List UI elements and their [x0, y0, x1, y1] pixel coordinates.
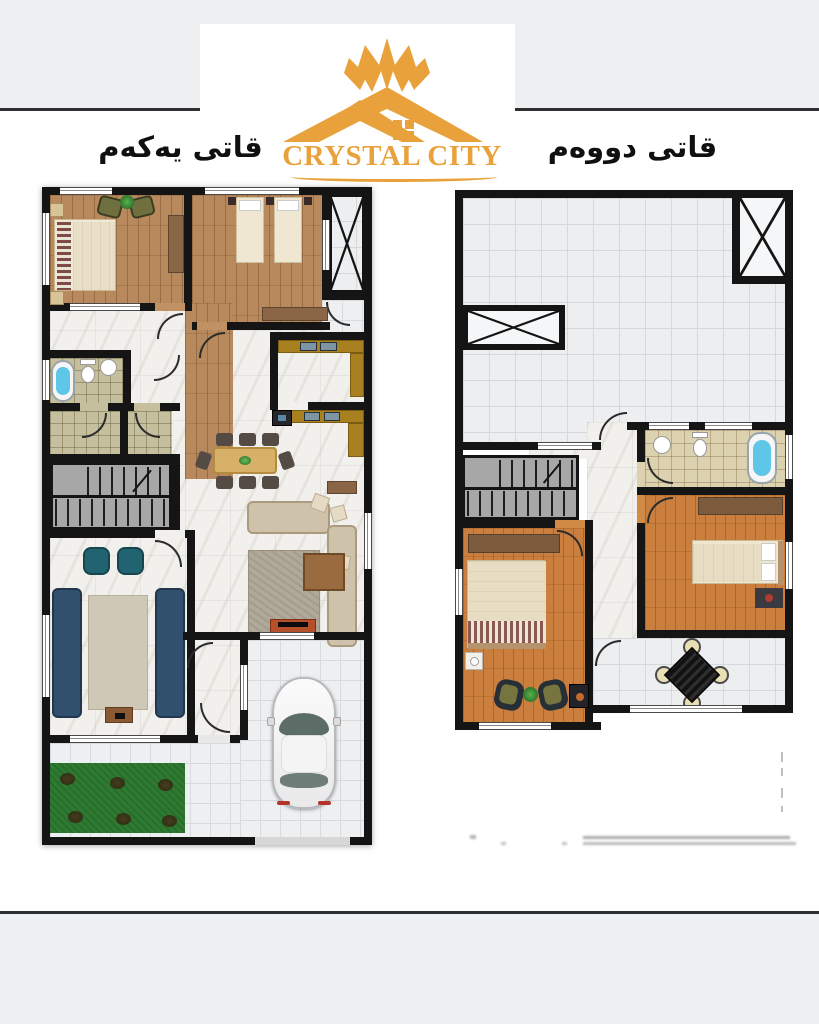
sofa-pillow	[329, 504, 347, 522]
single-bed	[236, 197, 264, 263]
teal-armchair	[83, 547, 110, 575]
light-shaft	[740, 198, 785, 276]
stair-treads	[467, 491, 574, 516]
nightstand	[465, 652, 483, 670]
toilet	[80, 359, 96, 365]
staircase	[462, 455, 579, 520]
wall	[50, 403, 180, 411]
window	[42, 360, 50, 400]
garden-bush	[116, 813, 131, 825]
kitchen-stove-unit	[320, 342, 337, 351]
dining-chair	[239, 433, 256, 446]
driveway-opening	[255, 837, 350, 845]
table-centerpiece	[239, 456, 251, 465]
staircase	[50, 462, 172, 530]
kitchen-counter	[348, 423, 364, 457]
dining-chair	[262, 433, 279, 446]
toilet	[692, 432, 708, 438]
bed-pillow	[761, 563, 776, 581]
wall	[322, 292, 364, 300]
bed-blanket	[468, 561, 546, 621]
teal-armchair	[117, 547, 144, 575]
car-taillight	[318, 801, 331, 805]
door-gap	[637, 462, 645, 487]
dresser	[262, 307, 328, 321]
plant	[120, 195, 134, 209]
bed-blanket	[693, 544, 761, 582]
tv-screen	[278, 622, 308, 627]
lamp	[470, 657, 479, 666]
chair-cushion	[498, 683, 519, 705]
car-mirror	[333, 717, 341, 726]
second-floor-plan	[455, 190, 793, 740]
nightstand	[228, 197, 236, 205]
nightstand	[50, 291, 64, 305]
bed-pillow	[277, 200, 299, 211]
window	[205, 187, 299, 195]
stair-treads	[87, 467, 167, 495]
wardrobe	[468, 534, 560, 553]
door-arc	[155, 540, 182, 567]
kitchen-counter	[350, 353, 364, 397]
door-gap	[555, 520, 585, 528]
stair-treads	[55, 499, 167, 526]
window	[785, 542, 793, 589]
dresser	[168, 215, 184, 273]
dining-chair	[277, 450, 295, 470]
car	[272, 677, 336, 809]
table-item	[576, 693, 584, 701]
edge-marks	[781, 752, 783, 762]
wall	[50, 454, 180, 462]
wall	[172, 454, 180, 538]
window	[60, 187, 112, 195]
dining-chair	[262, 476, 279, 489]
kitchen-stove-unit	[324, 412, 340, 421]
nightstand	[304, 197, 312, 205]
stair-treads	[499, 460, 576, 487]
wall	[637, 630, 793, 638]
nightstand	[50, 203, 64, 217]
bathtub	[747, 432, 777, 484]
bed-pillow-runner	[468, 621, 546, 643]
kitchen-sink-unit	[304, 412, 320, 421]
door-gap	[155, 303, 185, 311]
edge-marks	[781, 806, 783, 812]
coffee-table	[303, 553, 345, 591]
door-arc	[200, 703, 230, 733]
navy-sofa	[52, 588, 82, 718]
window	[455, 569, 463, 615]
structural-void	[462, 305, 565, 350]
window	[42, 615, 50, 697]
garden-bush	[68, 811, 83, 823]
window	[479, 722, 551, 730]
light-shaft	[330, 195, 364, 292]
car-rear-window	[280, 773, 328, 788]
car-roof	[281, 735, 327, 773]
sink	[653, 436, 671, 454]
door-gap	[637, 495, 645, 523]
door-gap	[134, 403, 160, 411]
double-bed	[467, 560, 545, 648]
nightstand	[266, 197, 274, 205]
garden-grass	[50, 763, 185, 833]
double-bed	[54, 219, 116, 291]
stair-divider	[53, 495, 169, 498]
bathtub	[51, 360, 75, 402]
window	[322, 220, 330, 270]
wall	[270, 332, 278, 410]
console-table	[327, 481, 357, 494]
rug-item	[765, 594, 773, 602]
door-gap	[80, 403, 108, 411]
blurred-watermark	[583, 836, 790, 839]
crystal-house-icon	[283, 38, 483, 142]
window	[364, 513, 372, 569]
wall	[455, 190, 793, 198]
guest-side-table	[105, 707, 133, 723]
door-arc	[157, 313, 183, 339]
wall	[732, 198, 740, 284]
blurred-mark	[470, 835, 476, 839]
window	[630, 705, 742, 713]
window	[70, 303, 140, 311]
door-gap	[278, 402, 308, 410]
first-floor-title: قاتی یەکەم	[58, 130, 303, 164]
side-table	[569, 684, 589, 708]
window	[260, 632, 314, 640]
bed-pillow	[239, 200, 261, 211]
wall	[732, 276, 793, 284]
toilet	[693, 439, 707, 457]
chair-cushion	[542, 684, 563, 706]
stair-divider	[465, 487, 576, 490]
door-arc	[154, 355, 180, 381]
window	[538, 442, 592, 450]
garden-bush	[110, 777, 125, 789]
door-gap	[155, 530, 185, 538]
blurred-mark	[501, 842, 506, 845]
kitchen-table-item	[278, 415, 286, 421]
door-gap	[197, 322, 227, 330]
bathtub-water	[56, 367, 70, 395]
dining-chair	[216, 433, 233, 446]
dining-chair	[216, 476, 233, 489]
guest-rug	[88, 595, 148, 710]
edge-marks	[781, 768, 783, 776]
wall	[184, 195, 192, 311]
window	[70, 735, 160, 743]
window	[785, 435, 793, 479]
bottom-band	[0, 911, 819, 1024]
kitchen-table	[272, 410, 292, 426]
blurred-watermark	[583, 842, 796, 845]
car-mirror	[267, 717, 275, 726]
second-floor-title: قاتی دووەم	[510, 130, 755, 164]
sink	[100, 359, 117, 376]
edge-marks	[781, 788, 783, 798]
garden-bush	[162, 815, 177, 827]
plant	[523, 687, 538, 702]
bed-pillow	[761, 543, 776, 561]
wall	[123, 350, 131, 403]
dining-chair	[239, 476, 256, 489]
kitchen-sink-unit	[300, 342, 317, 351]
bed-headboard	[468, 643, 546, 649]
single-bed	[274, 197, 302, 263]
navy-sofa	[155, 588, 185, 718]
window	[240, 665, 248, 710]
blurred-mark	[562, 842, 567, 845]
wardrobe	[698, 497, 783, 515]
bedside-rug	[755, 588, 783, 608]
wall	[120, 411, 128, 454]
window	[42, 213, 50, 285]
wall	[50, 350, 131, 358]
first-floor-plan	[42, 187, 372, 845]
wall	[637, 487, 793, 495]
bed-blanket	[73, 222, 115, 290]
table-item	[115, 713, 125, 719]
bed-headboard	[778, 541, 784, 585]
toilet	[81, 366, 95, 383]
entry-door-gap	[198, 735, 230, 743]
brand-underline	[291, 172, 497, 182]
garden-bush	[158, 779, 173, 791]
double-bed	[692, 540, 783, 584]
garden-bush	[60, 773, 75, 785]
bed-pillow-runner	[57, 222, 71, 290]
wall	[270, 332, 364, 340]
bathtub-water	[753, 440, 771, 476]
window	[649, 422, 689, 430]
car-taillight	[277, 801, 290, 805]
window	[705, 422, 752, 430]
